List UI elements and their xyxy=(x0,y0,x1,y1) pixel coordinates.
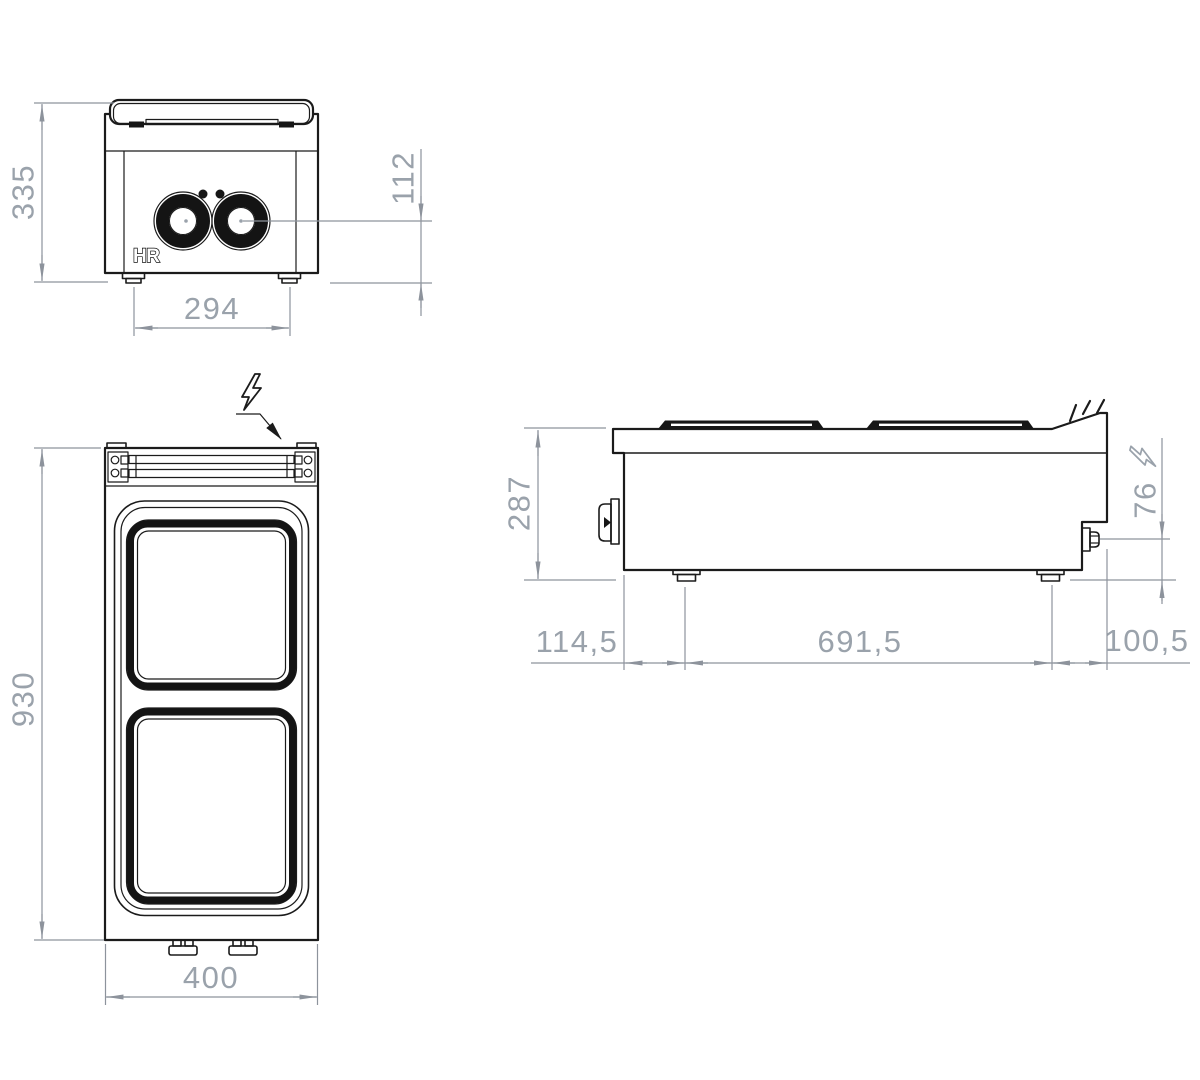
plan-knob-left xyxy=(169,940,197,955)
dim-front-offset-label: 114,5 xyxy=(536,624,619,659)
side-foot-rear xyxy=(1037,570,1064,581)
control-knob-left xyxy=(154,192,212,250)
plan-corner-tab-right xyxy=(297,443,316,448)
dim-control-axis-label: 112 xyxy=(386,151,421,205)
plan-knob-right xyxy=(229,940,257,955)
front-foot-right xyxy=(279,273,301,283)
dim-plan-width-label: 400 xyxy=(183,960,239,995)
side-foot-front xyxy=(673,570,700,581)
dim-side-height-label: 287 xyxy=(502,475,537,531)
side-view: 287 76 114,5 691, xyxy=(502,400,1191,670)
lightning-bolt-icon-side xyxy=(1127,446,1159,468)
hotplate-2 xyxy=(127,708,297,904)
front-lid-tab-right xyxy=(279,122,294,128)
front-lid-tab-left xyxy=(129,122,144,128)
dim-feet-span-label: 294 xyxy=(184,291,240,326)
front-view: HR 335 112 xyxy=(6,100,433,336)
dimension-plan-depth: 930 xyxy=(6,448,105,940)
drawing-canvas: HR 335 112 xyxy=(0,0,1200,1080)
plan-corner-tab-left xyxy=(107,443,126,448)
front-foot-left xyxy=(123,273,145,283)
dim-plan-depth-label: 930 xyxy=(6,671,41,727)
dim-feet-distance-label: 691,5 xyxy=(817,624,902,659)
leader-arrow xyxy=(236,414,281,439)
dimension-side-height: 287 xyxy=(502,428,617,580)
dim-rear-offset-label: 100,5 xyxy=(1104,623,1189,658)
technical-drawing-sheet: HR 335 112 xyxy=(0,0,1200,1080)
brand-logo: HR xyxy=(133,246,160,267)
side-hotplate-1 xyxy=(658,421,824,430)
hotplate-1 xyxy=(127,520,297,690)
dim-front-height-label: 335 xyxy=(6,164,41,220)
side-hotplate-2 xyxy=(866,421,1034,430)
knob-center-mark xyxy=(239,219,243,223)
dimension-plan-width: 400 xyxy=(106,944,318,1005)
dim-inlet-height-label: 76 xyxy=(1128,481,1163,518)
knob-center-mark xyxy=(184,219,188,223)
side-knob xyxy=(599,499,619,544)
indicator-light-right xyxy=(216,190,225,199)
dimension-feet-span: 294 xyxy=(134,287,290,336)
inlet-connector xyxy=(1082,528,1099,551)
lightning-bolt-icon xyxy=(242,374,261,410)
plan-view: 930 400 xyxy=(6,374,319,1005)
dimension-front-height: 335 xyxy=(6,103,115,282)
side-body-outline xyxy=(613,413,1107,570)
